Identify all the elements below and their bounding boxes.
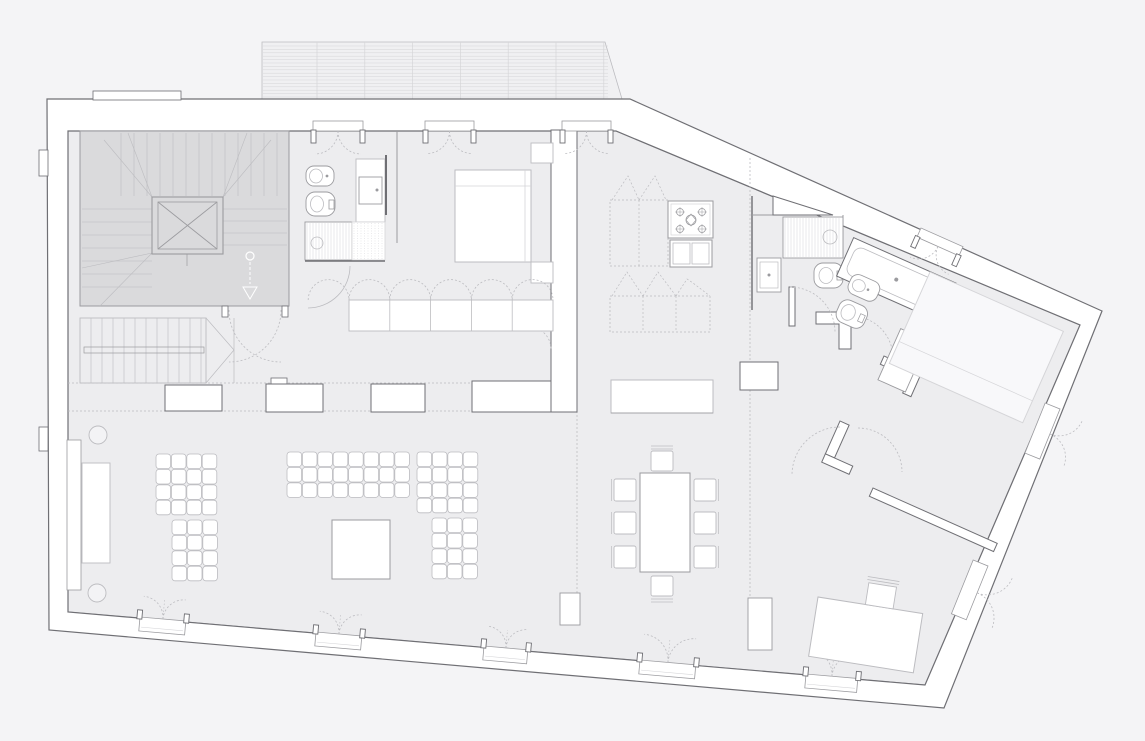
nightstand <box>531 143 553 163</box>
cushion-grid <box>156 500 171 515</box>
cushion-grid <box>463 452 478 467</box>
stove <box>668 201 713 238</box>
cushion-grid <box>187 469 202 484</box>
cushion-grid <box>171 500 186 515</box>
cushion-grid <box>187 500 202 515</box>
cushion-grid <box>302 483 317 498</box>
cushion-grid <box>349 467 364 482</box>
cushion-grid <box>172 520 217 581</box>
cushion-grid <box>203 535 218 550</box>
island-counter <box>611 380 713 413</box>
cushion-grid <box>203 551 218 566</box>
cushion-grid <box>417 452 432 467</box>
cushion-grid <box>463 483 478 498</box>
cushion-grid <box>432 518 447 533</box>
cushion-grid <box>432 467 447 482</box>
pier <box>266 384 323 412</box>
cushion-grid <box>432 549 447 564</box>
floor-plan-svg <box>0 0 1145 741</box>
cushion-grid <box>203 520 218 535</box>
wall-stub <box>789 287 795 326</box>
cushion-grid <box>171 485 186 500</box>
chair <box>614 479 636 501</box>
left-wall-inner <box>67 440 81 590</box>
faucet <box>768 274 771 277</box>
wall <box>551 130 577 412</box>
door-jamb <box>282 306 288 317</box>
stairs <box>80 318 206 383</box>
cushion-grid <box>187 485 202 500</box>
kitchen-sink <box>670 240 712 267</box>
cushion-grid <box>432 564 447 579</box>
elevator <box>152 197 223 254</box>
column <box>89 426 107 444</box>
cushion-grid <box>349 483 364 498</box>
wardrobe <box>349 300 553 331</box>
cushion-grid <box>448 452 463 467</box>
cushion-grid <box>202 500 217 515</box>
shower <box>305 222 352 260</box>
chair <box>651 576 673 596</box>
cushion-grid <box>202 454 217 469</box>
chair <box>694 479 716 501</box>
bed <box>455 170 531 262</box>
cushion-grid <box>318 483 333 498</box>
pier <box>748 598 772 650</box>
shower <box>783 217 843 258</box>
cushion-grid <box>156 485 171 500</box>
cushion-grid <box>463 467 478 482</box>
stairwell <box>80 131 289 306</box>
pier <box>165 385 222 411</box>
cushion-grid <box>463 564 478 579</box>
sink <box>359 177 382 204</box>
bench <box>82 463 110 563</box>
cushion-grid <box>364 452 379 467</box>
toilet <box>306 192 335 216</box>
wall-step <box>93 91 181 100</box>
cushion-grid <box>172 566 187 581</box>
cushion-grid <box>172 520 187 535</box>
cushion-grid <box>364 467 379 482</box>
cushion-grid <box>187 551 202 566</box>
cushion-grid <box>447 549 462 564</box>
cushion-grid <box>302 452 317 467</box>
cushion-grid <box>349 452 364 467</box>
cushion-grid <box>379 483 394 498</box>
cushion-grid <box>432 533 447 548</box>
cushion-grid <box>287 483 302 498</box>
cushion-grid <box>333 452 348 467</box>
cushion-grid <box>463 518 478 533</box>
pier <box>560 593 580 625</box>
cushion-grid <box>187 520 202 535</box>
cushion-grid <box>417 483 432 498</box>
chair <box>865 583 896 609</box>
cushion-grid <box>156 469 171 484</box>
cushion-grid <box>379 452 394 467</box>
cushion-grid <box>395 483 410 498</box>
cushion-grid <box>379 467 394 482</box>
bidet <box>306 166 334 186</box>
door-jamb <box>222 306 228 317</box>
cushion-grid <box>302 467 317 482</box>
cushion-grid <box>432 498 447 513</box>
cushion-grid <box>417 498 432 513</box>
cushion-grid <box>395 452 410 467</box>
left-wall-niche <box>39 150 48 176</box>
chair <box>614 512 636 534</box>
chair <box>614 546 636 568</box>
floor-plan-canvas <box>0 0 1145 741</box>
cushion-grid <box>447 564 462 579</box>
cushion-grid <box>432 452 447 467</box>
column <box>88 584 106 602</box>
cushion-grid <box>187 535 202 550</box>
cushion-grid <box>318 467 333 482</box>
cushion-grid <box>171 469 186 484</box>
chair <box>694 546 716 568</box>
cushion-grid <box>417 467 432 482</box>
cushion-grid <box>172 535 187 550</box>
cushion-grid <box>171 454 186 469</box>
cushion-grid <box>203 566 218 581</box>
cushion-grid <box>448 483 463 498</box>
low-table <box>332 520 390 579</box>
cushion-grid <box>202 469 217 484</box>
chair <box>694 512 716 534</box>
cushion-grid <box>448 467 463 482</box>
cushion-grid <box>202 485 217 500</box>
pier <box>472 381 551 412</box>
cushion-grid <box>287 467 302 482</box>
chair <box>651 451 673 471</box>
cushion-grid <box>333 483 348 498</box>
cushion-grid <box>318 452 333 467</box>
cushion-grid <box>395 467 410 482</box>
pier <box>371 384 425 412</box>
cushion-grid <box>432 518 477 579</box>
bath-mat <box>352 222 385 260</box>
dining-table <box>640 473 690 572</box>
pier <box>740 362 778 390</box>
cushion-grid <box>364 483 379 498</box>
faucet <box>376 189 379 192</box>
cushion-grid <box>187 454 202 469</box>
cushion-grid <box>463 498 478 513</box>
cushion-grid <box>432 483 447 498</box>
cushion-grid <box>287 452 409 497</box>
left-wall-niche <box>39 427 48 451</box>
cushion-grid <box>463 549 478 564</box>
cushion-grid <box>463 533 478 548</box>
roof-terrace <box>262 42 622 99</box>
cushion-grid <box>187 566 202 581</box>
cushion-grid <box>287 452 302 467</box>
cushion-grid <box>333 467 348 482</box>
cushion-grid <box>156 454 171 469</box>
cushion-grid <box>172 551 187 566</box>
cushion-grid <box>447 533 462 548</box>
cushion-grid <box>447 518 462 533</box>
cushion-grid <box>448 498 463 513</box>
